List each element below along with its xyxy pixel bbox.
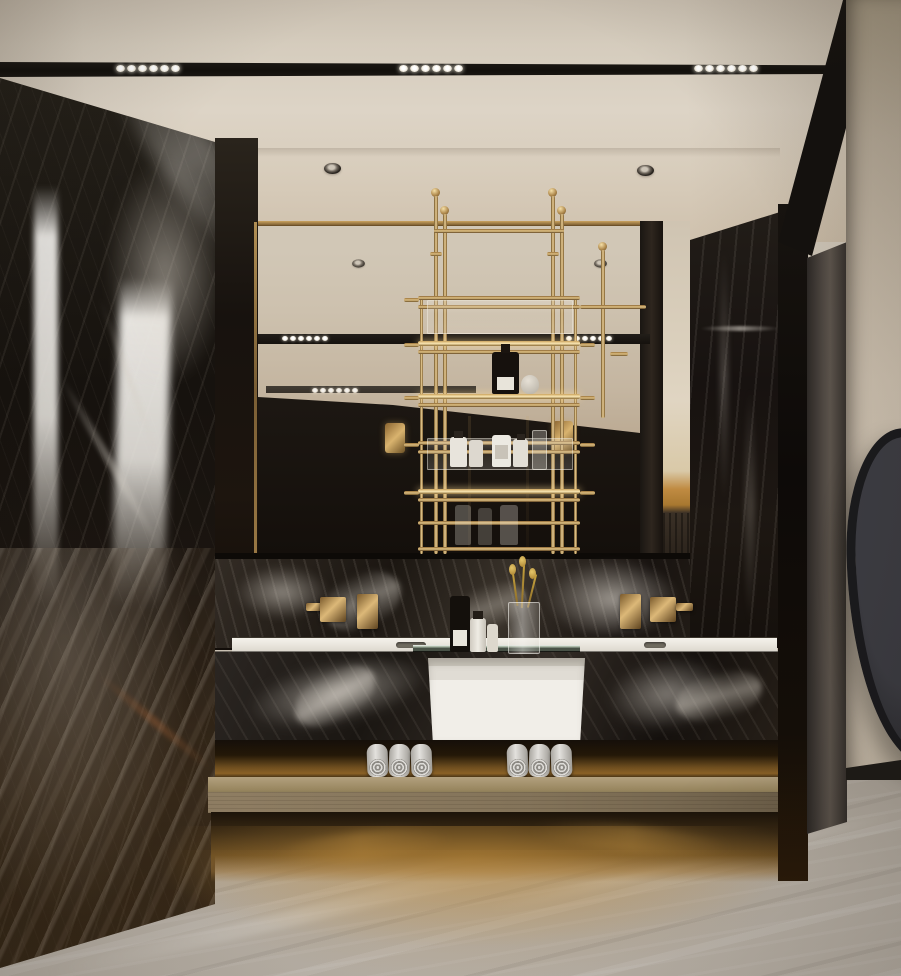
rack-upright: [574, 296, 577, 554]
towel-roll: [550, 744, 572, 778]
bottle-cap: [473, 611, 483, 619]
recessed-spotlight: [324, 163, 341, 174]
rack-white-bottle: [513, 439, 528, 467]
bottle-label: [453, 630, 467, 646]
towel-roll: [506, 744, 528, 778]
light-dot: [694, 65, 703, 72]
right-marble-panel: [690, 206, 780, 648]
bottle-cap: [517, 434, 525, 440]
light-dot: [606, 336, 612, 341]
side-peg: [404, 343, 419, 347]
light-dot: [322, 336, 328, 341]
towel-roll: [528, 744, 550, 778]
right-faucet-backplate: [650, 597, 676, 622]
rack-white-bottle: [492, 435, 511, 467]
light-dot: [160, 65, 169, 72]
reflected-spotlight: [352, 259, 365, 267]
shelf-bar: [418, 498, 580, 502]
left-faucet-spout: [357, 594, 378, 629]
light-dot: [727, 65, 736, 72]
shelf-bar: [418, 403, 580, 407]
light-dot-group: [116, 65, 180, 72]
light-dot: [410, 65, 419, 72]
light-dot: [352, 388, 358, 393]
rack-bottle-reflection: [478, 508, 492, 545]
bathroom-scene: [0, 0, 901, 976]
light-dot: [282, 336, 288, 341]
mirror: [258, 221, 690, 555]
flower-bud: [509, 564, 516, 575]
rod-collar: [430, 252, 442, 256]
side-peg: [580, 491, 595, 495]
towel-roll: [366, 744, 388, 778]
brass-trim-vertical: [254, 222, 257, 558]
mirror-reflection-doorway: [663, 221, 690, 555]
mirror-reflection-bulkhead: [640, 221, 663, 555]
light-dot: [336, 388, 342, 393]
light-dot: [290, 336, 296, 341]
lit-shelf-bar: [418, 341, 580, 346]
marble-vein: [745, 386, 755, 626]
marble-vein: [670, 661, 767, 730]
bottle-cap: [454, 431, 463, 438]
glass-shelf-box: [427, 300, 573, 334]
light-dot: [716, 65, 725, 72]
light-dot: [344, 388, 350, 393]
glass-vase: [508, 602, 540, 654]
marble-vein: [240, 641, 434, 743]
side-peg: [580, 343, 595, 347]
towel-niche: [215, 740, 780, 778]
light-dot-group: [399, 65, 463, 72]
light-dot: [432, 65, 441, 72]
shelf-bar: [418, 547, 580, 551]
grey-pillar: [807, 238, 847, 838]
wood-shelf-top: [208, 777, 780, 793]
marble-vein: [700, 326, 780, 331]
floor-warm-reflection: [170, 850, 790, 976]
side-peg: [404, 443, 419, 447]
window-reflection: [34, 186, 58, 606]
lit-shelf-bar: [418, 394, 580, 399]
light-dot: [314, 336, 320, 341]
light-dot: [705, 65, 714, 72]
side-peg: [610, 352, 628, 356]
reflected-dot-group: [312, 388, 358, 393]
light-dot: [116, 65, 125, 72]
light-dot: [590, 336, 596, 341]
small-white-bottle: [487, 624, 498, 652]
rack-bottle-reflection: [500, 505, 518, 545]
flower-bud: [519, 556, 526, 567]
light-dot: [312, 388, 318, 393]
bottle-label: [495, 445, 508, 459]
light-dot: [582, 336, 588, 341]
mirror-brass-trim: [258, 221, 690, 226]
towel-roll: [410, 744, 432, 778]
ceiling-soffit-line: [215, 148, 780, 157]
right-faucet-lever: [676, 603, 693, 611]
recessed-spotlight: [637, 165, 654, 176]
rack-white-bottle: [450, 437, 467, 467]
bottle-pump: [501, 344, 510, 353]
light-dot: [399, 65, 408, 72]
rod-collar: [547, 252, 559, 256]
white-perfume-bottle: [470, 618, 486, 652]
left-faucet-backplate: [320, 597, 346, 622]
towel-roll: [388, 744, 410, 778]
wood-shelf-front: [208, 792, 780, 813]
side-peg: [404, 298, 419, 302]
side-peg: [580, 443, 595, 447]
marble-vein: [284, 652, 385, 739]
flower-bud: [529, 568, 536, 579]
shelf-bar: [580, 305, 646, 309]
reflected-dot-group: [282, 336, 328, 341]
hanging-rod: [560, 214, 564, 554]
hanging-rod-right: [601, 250, 605, 418]
light-dot: [320, 388, 326, 393]
light-dot: [298, 336, 304, 341]
side-peg: [580, 396, 595, 400]
sink-drain-slot: [644, 642, 666, 648]
side-peg: [404, 396, 419, 400]
light-dot: [127, 65, 136, 72]
rack-bottle-reflection: [455, 505, 471, 545]
rack-atomizer: [532, 430, 547, 470]
rack-white-bottle: [469, 440, 483, 467]
rack-white-dome: [521, 375, 539, 394]
wall-shadow-gap: [778, 204, 808, 881]
light-dot: [738, 65, 747, 72]
hanging-rod: [443, 214, 447, 554]
light-dot: [421, 65, 430, 72]
light-dot: [454, 65, 463, 72]
rack-black-bottle: [492, 352, 519, 394]
light-dot: [443, 65, 452, 72]
shelf-bar: [418, 521, 580, 525]
black-perfume-bottle: [450, 596, 470, 652]
brass-plate-reflection: [385, 423, 405, 453]
marble-vein: [601, 650, 735, 739]
light-dot: [749, 65, 758, 72]
rack-upright: [420, 296, 423, 554]
light-dot: [306, 336, 312, 341]
marble-vein: [720, 246, 728, 506]
light-dot: [138, 65, 147, 72]
mirror-reflection-rack: [526, 416, 529, 551]
marble-vein: [235, 565, 330, 620]
bottle-label: [497, 377, 514, 390]
right-faucet-spout: [620, 594, 641, 629]
rack-top-bar: [434, 229, 564, 233]
light-dot: [328, 388, 334, 393]
white-vessel-basin: [428, 658, 585, 740]
side-peg: [404, 491, 419, 495]
light-dot: [149, 65, 158, 72]
light-dot-group: [694, 65, 758, 72]
light-dot: [171, 65, 180, 72]
lit-shelf-bar: [418, 489, 580, 494]
